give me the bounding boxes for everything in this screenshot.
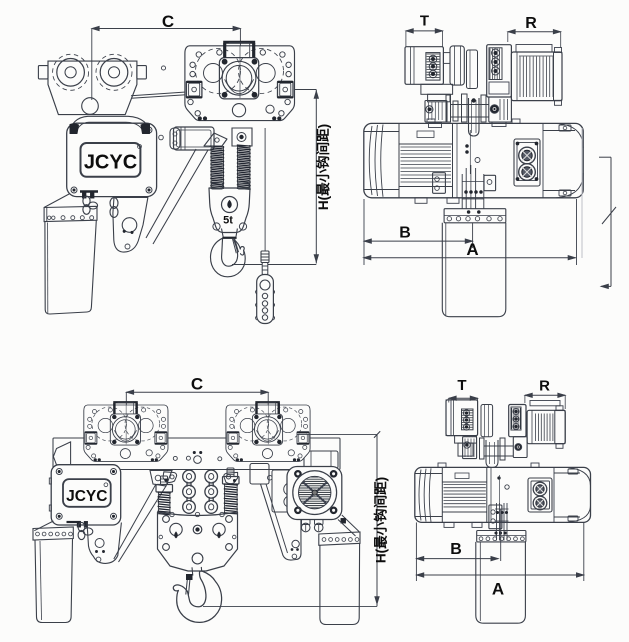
svg-text:B: B <box>399 225 411 242</box>
svg-text:JCYC: JCYC <box>84 152 137 174</box>
svg-text:H(最小钩间距): H(最小钩间距) <box>315 124 331 210</box>
svg-text:B: B <box>450 541 462 558</box>
svg-text:T: T <box>420 13 429 30</box>
svg-text:C: C <box>191 375 203 394</box>
svg-text:R: R <box>525 15 537 32</box>
svg-text:C: C <box>162 12 174 31</box>
svg-text:T: T <box>457 377 466 394</box>
svg-text:5t: 5t <box>223 215 233 227</box>
svg-text:JCYC: JCYC <box>66 488 107 505</box>
svg-text:H(最小钩间距): H(最小钩间距) <box>373 477 389 563</box>
svg-text:A: A <box>492 580 504 599</box>
svg-text:A: A <box>466 240 478 259</box>
svg-text:R: R <box>539 378 550 395</box>
